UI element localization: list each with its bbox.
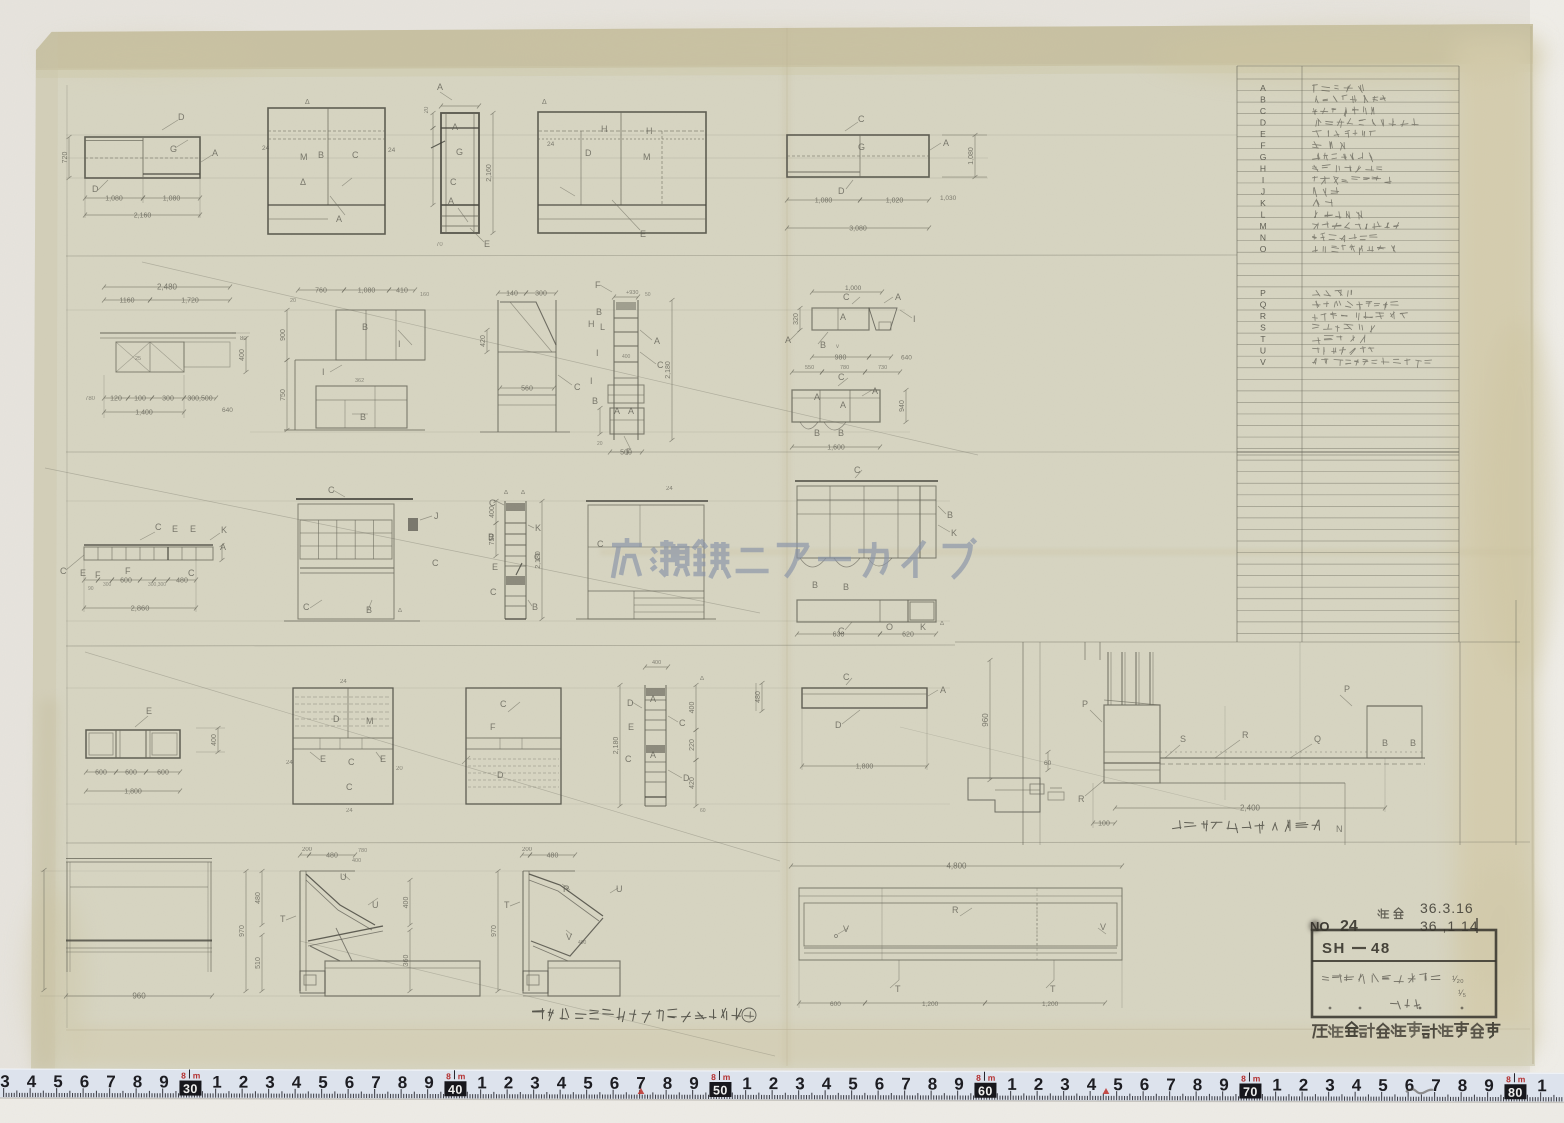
svg-text:K: K [920,622,926,632]
svg-text:P: P [1260,288,1266,298]
svg-text:20: 20 [424,106,430,113]
svg-text:8: 8 [446,1071,451,1081]
svg-text:E: E [628,722,634,732]
svg-text:300: 300 [535,290,547,297]
svg-text:D: D [627,698,634,708]
svg-text:8: 8 [181,1071,186,1081]
svg-text:600: 600 [120,577,132,584]
svg-text:C: C [838,626,845,636]
svg-text:2,180: 2,180 [613,737,620,755]
svg-text:3: 3 [795,1074,805,1093]
svg-text:60: 60 [700,808,706,814]
svg-text:780: 780 [358,848,367,854]
svg-text:510: 510 [255,957,262,969]
svg-text:C: C [597,539,604,549]
svg-text:I: I [596,348,599,358]
svg-text:8: 8 [1193,1075,1203,1094]
svg-text:100: 100 [1098,820,1110,827]
svg-text:E: E [484,239,490,249]
svg-text:A: A [943,138,949,148]
svg-text:C: C [450,177,457,187]
svg-text:3: 3 [0,1072,10,1091]
svg-text:C: C [490,587,497,597]
svg-text:F: F [595,280,601,290]
svg-text:C: C [352,150,359,160]
svg-text:40: 40 [448,1083,463,1097]
svg-text:C: C [432,558,439,568]
svg-text:F: F [490,722,496,732]
svg-text:F: F [1260,141,1265,151]
svg-text:A: A [614,406,620,416]
svg-text:Δ: Δ [700,676,704,682]
svg-text:B: B [366,605,372,615]
svg-text:20: 20 [396,766,403,772]
svg-text:1,720: 1,720 [181,297,199,304]
svg-text:9: 9 [424,1073,434,1092]
svg-text:2,480: 2,480 [157,282,178,291]
svg-text:2,160: 2,160 [486,164,493,182]
svg-text:1,400: 1,400 [135,409,153,416]
svg-text:120: 120 [110,395,122,402]
svg-text:2: 2 [504,1073,514,1092]
svg-text:560: 560 [521,385,533,392]
svg-text:E: E [172,524,178,534]
svg-text:4: 4 [1352,1076,1362,1095]
svg-text:970: 970 [491,925,498,937]
svg-text:Q: Q [1314,734,1321,744]
svg-text:400: 400 [689,702,696,714]
svg-text:R: R [952,905,959,915]
svg-text:300: 300 [103,582,112,588]
svg-text:100: 100 [134,395,146,402]
svg-text:I: I [913,314,916,324]
svg-text:C: C [574,382,581,392]
svg-text:6: 6 [875,1074,885,1093]
svg-text:420: 420 [689,777,696,789]
svg-text:E: E [80,568,86,578]
svg-text:4: 4 [557,1074,567,1093]
svg-text:C: C [843,292,850,302]
svg-text:B: B [843,582,849,592]
svg-text:B: B [1382,738,1388,748]
svg-text:420: 420 [480,335,487,347]
svg-text:360: 360 [403,955,410,967]
svg-text:C: C [346,782,353,792]
svg-text:A: A [940,685,946,695]
svg-text:B: B [592,396,598,406]
svg-text:E: E [492,562,498,572]
svg-text:B: B [814,428,820,438]
svg-text:362: 362 [355,378,364,384]
svg-text:20: 20 [597,441,603,447]
svg-text:C: C [858,114,865,124]
svg-text:m: m [988,1073,996,1083]
svg-text:C: C [679,718,686,728]
svg-text:C: C [838,372,845,382]
svg-text:300,500: 300,500 [187,395,212,402]
svg-text:20: 20 [290,298,296,304]
svg-text:N: N [1336,824,1343,834]
svg-text:720: 720 [62,152,69,164]
svg-text:8: 8 [398,1073,408,1092]
svg-text:5: 5 [1113,1075,1123,1094]
svg-text:J: J [434,511,439,521]
svg-text:90: 90 [88,586,94,592]
svg-text:3: 3 [530,1073,540,1092]
svg-text:980: 980 [835,354,847,361]
svg-text:50: 50 [645,292,651,298]
svg-text:1,200: 1,200 [922,1001,939,1008]
svg-text:7: 7 [1431,1076,1441,1095]
svg-text:T: T [280,914,286,924]
svg-text:9: 9 [954,1075,964,1094]
svg-text:SH: SH [1322,940,1346,957]
svg-text:4: 4 [27,1072,37,1091]
svg-text:Q: Q [1260,300,1267,310]
svg-text:8: 8 [976,1073,981,1083]
svg-text:300: 300 [162,395,174,402]
svg-text:B: B [947,510,953,520]
svg-text:U: U [616,884,623,894]
svg-text:M: M [300,152,308,162]
svg-text:400: 400 [239,349,246,361]
svg-text:400: 400 [352,858,361,864]
svg-text:1,000: 1,000 [845,285,862,292]
svg-text:F: F [125,566,131,576]
svg-text:C: C [625,754,632,764]
svg-text:970: 970 [239,925,246,937]
svg-text:5: 5 [583,1074,593,1093]
svg-text:G: G [858,142,865,152]
svg-text:500: 500 [620,449,632,456]
svg-text:R: R [563,884,570,894]
svg-text:B: B [1260,95,1266,105]
svg-text:1: 1 [1272,1076,1282,1095]
svg-text:P: P [1344,684,1350,694]
svg-text:H: H [601,124,608,134]
svg-text:400: 400 [489,506,496,518]
svg-text:V: V [566,932,572,942]
svg-text:36 ,1 14: 36 ,1 14 [1420,918,1479,934]
svg-text:D: D [333,714,340,724]
svg-text:Δ: Δ [398,608,402,614]
svg-text:E: E [190,524,196,534]
svg-text:A: A [650,694,656,704]
svg-text:60: 60 [978,1084,993,1098]
svg-text:900: 900 [280,329,287,341]
svg-text:2,860: 2,860 [131,603,150,612]
svg-text:E: E [1260,129,1266,139]
svg-text:400: 400 [652,660,661,666]
svg-text:A: A [840,400,846,410]
svg-text:2,180: 2,180 [535,551,542,569]
svg-text:50: 50 [713,1083,728,1097]
svg-text:600: 600 [95,769,107,776]
svg-text:200: 200 [522,847,533,853]
svg-text:8: 8 [1506,1074,1511,1084]
svg-text:24: 24 [666,486,673,492]
svg-text:A: A [220,542,226,552]
svg-text:1160: 1160 [119,297,134,304]
svg-text:600: 600 [157,769,169,776]
svg-text:H: H [646,126,653,136]
svg-text:1: 1 [742,1074,752,1093]
svg-text:A: A [1260,83,1266,93]
svg-text:K: K [951,528,957,538]
svg-text:6: 6 [345,1073,355,1092]
svg-text:24: 24 [340,679,347,685]
svg-text:m: m [1253,1073,1261,1083]
svg-text:C: C [843,672,850,682]
svg-text:1: 1 [212,1073,222,1092]
svg-text:9: 9 [1484,1076,1494,1095]
svg-text:480: 480 [326,852,338,859]
svg-text:9: 9 [689,1074,699,1093]
svg-text:D: D [838,186,845,196]
svg-text:M: M [1259,221,1266,231]
svg-text:140: 140 [506,290,518,297]
svg-text:+930: +930 [626,290,638,296]
svg-text:B: B [1410,738,1416,748]
svg-text:750: 750 [489,534,496,546]
svg-text:410: 410 [396,287,408,294]
svg-text:480: 480 [547,852,559,859]
svg-text:G: G [170,144,177,154]
svg-text:D: D [497,770,504,780]
svg-text:1,800: 1,800 [856,763,874,770]
svg-text:C: C [60,566,67,576]
svg-text:B: B [360,412,366,422]
svg-text:A: A [840,312,846,322]
svg-text:V: V [1260,357,1266,367]
svg-text:1: 1 [1007,1075,1017,1094]
svg-text:B: B [812,580,818,590]
svg-text:3: 3 [1060,1075,1070,1094]
svg-text:30: 30 [183,1082,198,1096]
svg-text:760: 760 [315,287,327,294]
svg-text:v: v [836,344,839,350]
svg-text:C: C [155,522,162,532]
svg-text:R: R [1242,730,1249,740]
svg-text:400: 400 [403,897,410,909]
svg-text:960: 960 [132,991,146,1000]
svg-text:5: 5 [1378,1076,1388,1095]
svg-text:1: 1 [1537,1076,1547,1095]
svg-text:6: 6 [80,1072,90,1091]
svg-text:8: 8 [663,1074,673,1093]
svg-text:C: C [500,699,507,709]
svg-text:I: I [1262,175,1264,185]
svg-text:4: 4 [292,1073,302,1092]
svg-text:M: M [643,152,651,162]
svg-text:750: 750 [280,389,287,401]
svg-text:780: 780 [840,365,849,371]
svg-text:N: N [1260,233,1266,243]
svg-text:60: 60 [1044,760,1052,767]
svg-text:m: m [723,1072,731,1082]
svg-text:9: 9 [159,1072,169,1091]
svg-text:1,030: 1,030 [940,195,957,202]
svg-text:A: A [650,750,656,760]
svg-text:H: H [1260,164,1266,174]
svg-text:2: 2 [1034,1075,1044,1094]
svg-text:8: 8 [1458,1076,1468,1095]
svg-text:Δ: Δ [300,177,306,187]
svg-text:8: 8 [711,1072,716,1082]
svg-text:6: 6 [1140,1075,1150,1094]
svg-text:E: E [146,706,152,716]
svg-text:4: 4 [822,1074,832,1093]
svg-text:3,080: 3,080 [849,225,867,232]
svg-text:P: P [1082,699,1088,709]
svg-text:O: O [886,622,893,632]
svg-text:480: 480 [755,691,762,703]
svg-text:640: 640 [901,355,912,362]
svg-text:200: 200 [302,847,313,853]
svg-text:1,080: 1,080 [968,147,975,165]
svg-text:2: 2 [769,1074,779,1093]
svg-text:R: R [1078,794,1085,804]
svg-text:A: A [654,336,660,346]
svg-text:400: 400 [578,940,587,946]
svg-text:E: E [380,754,386,764]
svg-text:620: 620 [902,631,914,638]
svg-text:2: 2 [1299,1076,1309,1095]
svg-text:U: U [1260,346,1266,356]
svg-text:480: 480 [255,892,262,904]
svg-text:940: 940 [899,400,906,412]
svg-text:K: K [535,523,541,533]
svg-text:Δ: Δ [521,490,525,496]
svg-text:9: 9 [1219,1075,1229,1094]
svg-text:I: I [322,367,325,377]
svg-text:24: 24 [286,760,293,766]
svg-text:24: 24 [388,147,396,154]
svg-text:24: 24 [262,145,270,152]
svg-text:C: C [348,757,355,767]
svg-text:T: T [895,984,901,994]
svg-text:B: B [532,602,538,612]
svg-text:V: V [1100,922,1106,932]
svg-text:I: I [590,376,593,386]
svg-text:1,080: 1,080 [815,197,833,204]
svg-text:C: C [854,465,861,475]
svg-text:2,180: 2,180 [665,361,672,379]
svg-text:24: 24 [547,141,555,148]
svg-text:300,300: 300,300 [148,582,166,588]
svg-text:A: A [448,196,454,206]
svg-text:G: G [456,147,463,157]
svg-text:B: B [820,340,826,350]
svg-text:G: G [1260,152,1267,162]
svg-text:A: A [336,214,342,224]
svg-text:m: m [458,1071,466,1081]
svg-text:H: H [588,319,595,329]
svg-text:6: 6 [610,1074,620,1093]
svg-text:780: 780 [85,396,96,402]
svg-text:24: 24 [346,808,353,814]
svg-text:730: 730 [878,365,887,371]
svg-text:Δ: Δ [504,490,508,496]
svg-text:550: 550 [805,365,814,371]
svg-text:A: A [895,292,901,302]
svg-text:B: B [596,307,602,317]
svg-text:5: 5 [848,1074,858,1093]
svg-text:640: 640 [222,407,233,414]
svg-text:Δ: Δ [542,99,547,106]
svg-text:80: 80 [1508,1086,1523,1100]
svg-text:70: 70 [436,242,443,248]
svg-text:2,160: 2,160 [134,212,152,219]
svg-text:C: C [303,602,310,612]
svg-text:C: C [188,568,195,578]
svg-text:960: 960 [981,713,990,727]
svg-text:C: C [328,485,335,495]
svg-text:24: 24 [1340,918,1358,935]
svg-text:T: T [504,900,510,910]
svg-text:C: C [1260,106,1266,116]
svg-text:3: 3 [1325,1076,1335,1095]
svg-text:480: 480 [176,577,188,584]
svg-text:8: 8 [133,1072,143,1091]
svg-text:T: T [1050,984,1056,994]
svg-text:m: m [1518,1074,1526,1084]
svg-text:1,800: 1,800 [124,788,142,795]
svg-text:48: 48 [1371,940,1391,957]
svg-text:L: L [1261,210,1266,220]
svg-text:S: S [1260,323,1266,333]
svg-text:B: B [362,322,368,332]
svg-text:A: A [212,148,218,158]
svg-text:7: 7 [901,1075,911,1094]
svg-text:E: E [320,754,326,764]
svg-text:T: T [1260,334,1265,344]
svg-text:4,800: 4,800 [946,861,967,870]
svg-text:I: I [398,339,401,349]
svg-text:M: M [366,716,374,726]
svg-text:4: 4 [1087,1075,1097,1094]
svg-text:7: 7 [371,1073,381,1092]
svg-text:1,020: 1,020 [886,197,904,204]
svg-text:8: 8 [928,1075,938,1094]
svg-text:R: R [1260,311,1266,321]
svg-text:1: 1 [477,1073,487,1092]
svg-text:D: D [92,184,99,194]
svg-text:S: S [1180,734,1186,744]
svg-text:A: A [437,82,443,92]
svg-text:600: 600 [125,769,137,776]
svg-text:3: 3 [265,1073,275,1092]
svg-text:160: 160 [420,292,429,298]
svg-text:m: m [193,1071,201,1081]
svg-text:1,600: 1,600 [827,444,845,451]
svg-text:U: U [340,872,347,882]
svg-text:400: 400 [211,734,218,746]
svg-text:36.3.16: 36.3.16 [1420,900,1474,916]
svg-text:7: 7 [1166,1075,1176,1094]
svg-text:70: 70 [1243,1085,1258,1099]
svg-text:E: E [640,229,646,239]
svg-text:Δ: Δ [940,621,944,627]
svg-text:D: D [835,720,842,730]
svg-text:L: L [600,322,605,332]
svg-text:2: 2 [239,1073,249,1092]
svg-text:V: V [843,924,849,934]
svg-text:8: 8 [1241,1073,1246,1083]
svg-text:A: A [628,406,634,416]
svg-text:J: J [1261,187,1265,197]
svg-text:1,080: 1,080 [358,287,376,294]
